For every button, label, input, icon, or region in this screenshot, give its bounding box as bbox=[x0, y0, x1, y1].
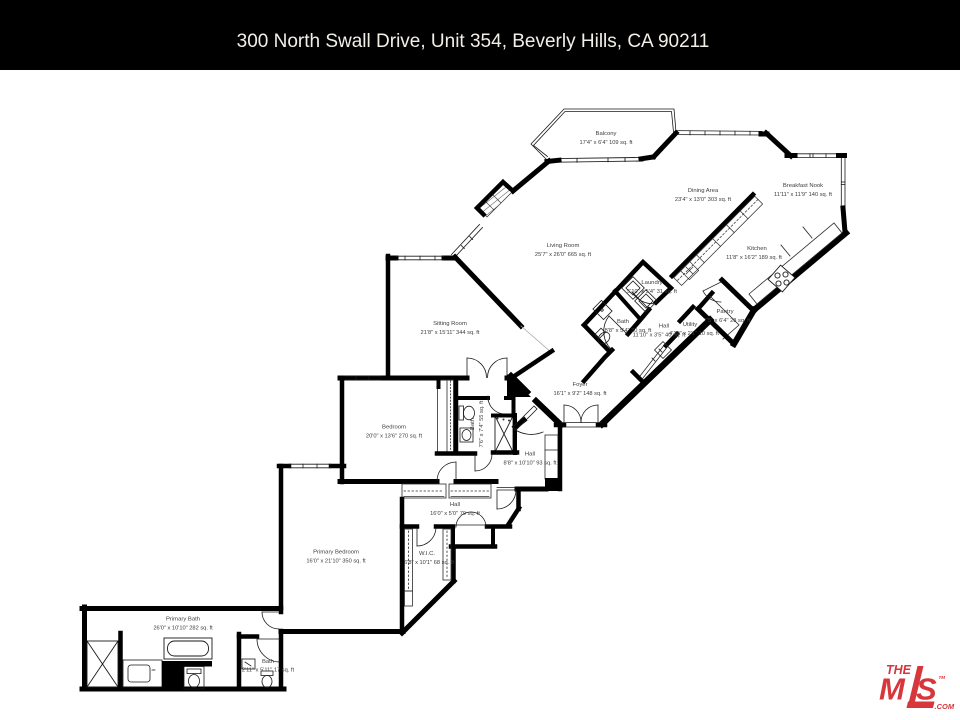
svg-text:Kitchen: Kitchen bbox=[747, 246, 767, 252]
svg-text:21'8" x 15'11" 344 sq. ft: 21'8" x 15'11" 344 sq. ft bbox=[421, 330, 480, 336]
svg-text:Living Room: Living Room bbox=[547, 243, 580, 249]
svg-text:Breakfast Nook: Breakfast Nook bbox=[783, 183, 823, 189]
svg-text:26'0" x 10'10" 282 sq. ft: 26'0" x 10'10" 282 sq. ft bbox=[153, 626, 213, 632]
svg-text:.COM: .COM bbox=[935, 702, 955, 711]
svg-text:Laundry: Laundry bbox=[641, 280, 662, 286]
svg-text:Primary Bath: Primary Bath bbox=[166, 617, 200, 623]
svg-text:17'4" x 6'4" 109 sq. ft: 17'4" x 6'4" 109 sq. ft bbox=[579, 140, 632, 146]
svg-text:Hall: Hall bbox=[450, 502, 460, 508]
svg-text:25'7" x 26'0" 665 sq. ft: 25'7" x 26'0" 665 sq. ft bbox=[535, 252, 592, 258]
svg-text:6'8" x 10'1" 68 sq. ft: 6'8" x 10'1" 68 sq. ft bbox=[404, 560, 454, 566]
svg-text:Foyer: Foyer bbox=[572, 382, 587, 388]
svg-text:M: M bbox=[879, 672, 906, 707]
svg-text:Bath: Bath bbox=[470, 418, 476, 430]
svg-text:20'0" x 13'6" 270 sq. ft: 20'0" x 13'6" 270 sq. ft bbox=[366, 434, 423, 440]
svg-text:11'11" x 11'9" 140 sq. ft: 11'11" x 11'9" 140 sq. ft bbox=[774, 192, 832, 198]
svg-text:11'8" x 16'2" 189 sq. ft: 11'8" x 16'2" 189 sq. ft bbox=[726, 255, 782, 261]
svg-text:2'11" x 5'11" 17 sq. ft: 2'11" x 5'11" 17 sq. ft bbox=[242, 668, 295, 674]
svg-text:W.I.C.: W.I.C. bbox=[419, 551, 435, 557]
svg-text:Primary Bedroom: Primary Bedroom bbox=[313, 550, 359, 556]
svg-text:Sitting Room: Sitting Room bbox=[433, 321, 467, 327]
svg-text:Dining Area: Dining Area bbox=[688, 188, 719, 194]
svg-text:Bath: Bath bbox=[617, 319, 629, 325]
svg-text:16'0" x 5'0" 79 sq. ft: 16'0" x 5'0" 79 sq. ft bbox=[430, 511, 480, 517]
svg-text:Balcony: Balcony bbox=[596, 131, 617, 137]
svg-text:7'6" x 7'4" 55 sq. ft: 7'6" x 7'4" 55 sq. ft bbox=[479, 400, 485, 447]
svg-text:TM: TM bbox=[939, 675, 946, 680]
svg-text:Hall: Hall bbox=[659, 324, 669, 330]
svg-text:4'10" x 2'1" 10 sq. ft: 4'10" x 2'1" 10 sq. ft bbox=[669, 331, 719, 337]
svg-text:16'1" x 9'2" 148 sq. ft: 16'1" x 9'2" 148 sq. ft bbox=[553, 391, 606, 397]
svg-text:16'0" x 21'10" 350 sq. ft: 16'0" x 21'10" 350 sq. ft bbox=[306, 559, 366, 565]
svg-text:Utility: Utility bbox=[683, 322, 697, 328]
svg-text:23'4" x 13'0" 303 sq. ft: 23'4" x 13'0" 303 sq. ft bbox=[675, 197, 732, 203]
svg-text:Bedroom: Bedroom bbox=[382, 425, 406, 431]
svg-text:Bath: Bath bbox=[262, 659, 274, 665]
svg-text:Pantry: Pantry bbox=[716, 309, 733, 315]
svg-text:Hall: Hall bbox=[525, 452, 535, 458]
svg-text:300 North Swall Drive, Unit 35: 300 North Swall Drive, Unit 354, Beverly… bbox=[237, 31, 710, 52]
svg-text:7'5" x 6'4" 28 sq. ft: 7'5" x 6'4" 28 sq. ft bbox=[704, 318, 751, 324]
svg-text:5'10" x 5'4" 31 sq. ft: 5'10" x 5'4" 31 sq. ft bbox=[627, 289, 677, 295]
svg-text:8'8" x 10'10" 93 sq. ft: 8'8" x 10'10" 93 sq. ft bbox=[503, 461, 556, 467]
